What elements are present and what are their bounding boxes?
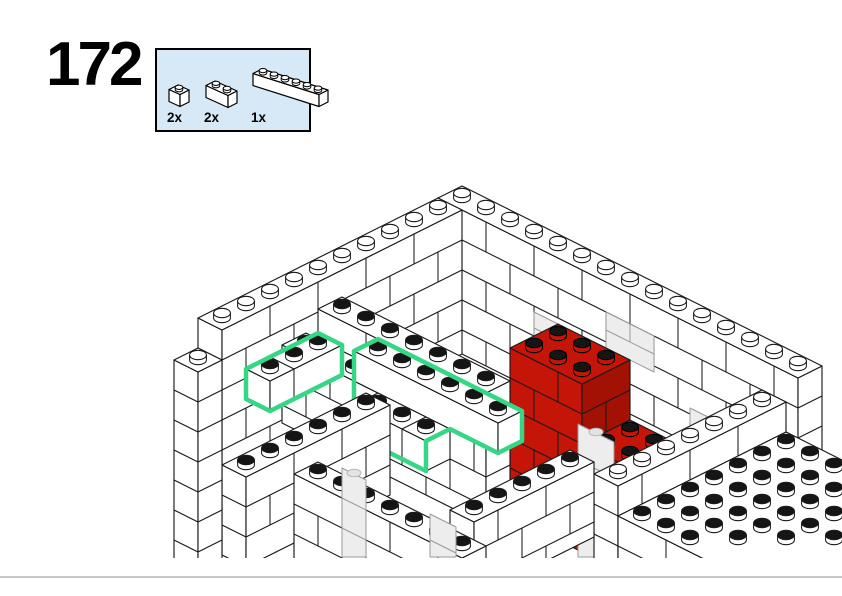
part-quantity-1x6: 1x xyxy=(251,110,266,125)
parts-callout: 2x 2x 1x xyxy=(155,48,311,132)
part-item-1x1: 2x xyxy=(167,81,195,125)
brick-1x2-icon xyxy=(204,77,242,109)
brick-1x6-icon xyxy=(251,65,331,109)
footer-divider xyxy=(0,576,842,578)
part-item-1x2: 2x xyxy=(204,77,242,125)
part-item-1x6: 1x xyxy=(251,65,331,125)
step-number: 172 xyxy=(46,34,140,96)
instruction-page: 172 2x 2x 1x xyxy=(0,0,842,596)
part-quantity-1x2: 2x xyxy=(204,110,219,125)
brick-1x1-icon xyxy=(167,81,195,109)
part-quantity-1x1: 2x xyxy=(167,110,182,125)
